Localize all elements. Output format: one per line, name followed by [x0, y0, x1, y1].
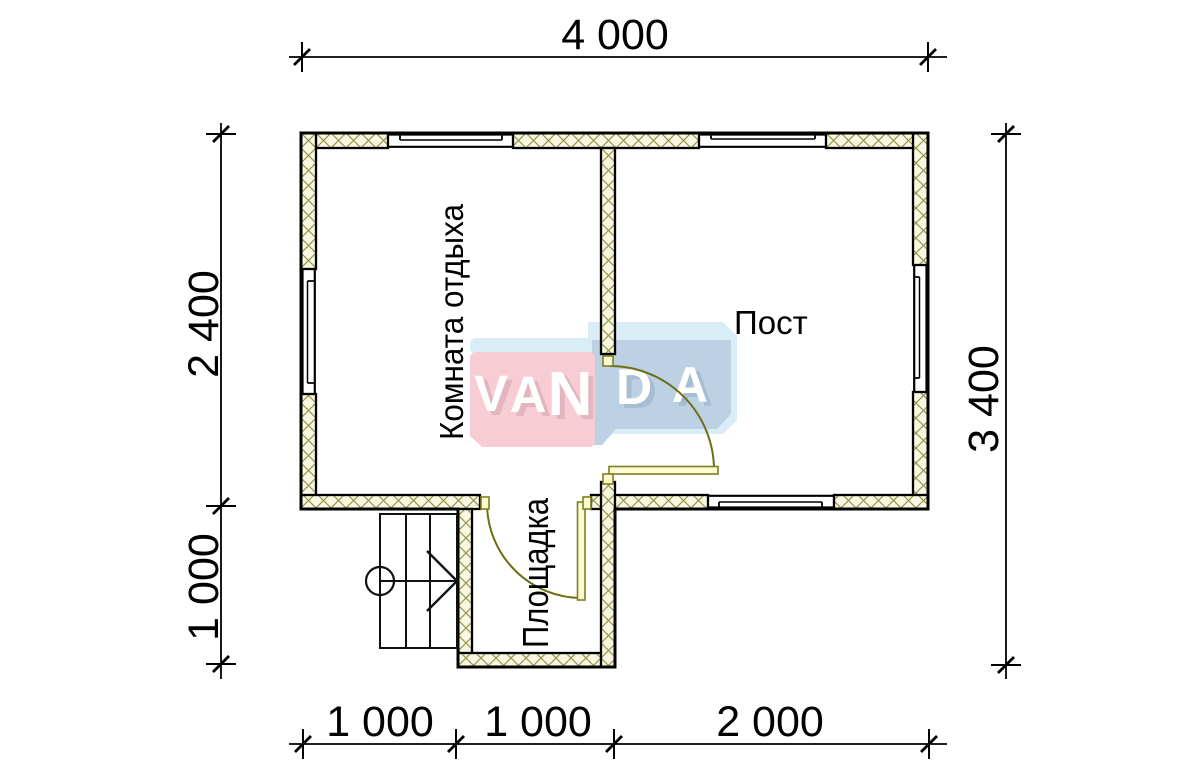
svg-text:1 000: 1 000: [326, 698, 434, 746]
svg-text:Пост: Пост: [734, 304, 808, 341]
svg-text:3 400: 3 400: [960, 345, 1008, 453]
svg-text:4 000: 4 000: [561, 11, 669, 59]
svg-text:1 000: 1 000: [484, 698, 592, 746]
svg-text:Комната отдыха: Комната отдыха: [433, 203, 470, 440]
svg-text:A: A: [510, 366, 547, 423]
svg-text:N: N: [548, 360, 593, 429]
svg-text:2 000: 2 000: [716, 698, 824, 746]
svg-text:2 400: 2 400: [180, 270, 228, 378]
svg-text:1 000: 1 000: [180, 533, 228, 641]
svg-text:V: V: [474, 365, 508, 422]
svg-text:Площадка: Площадка: [515, 497, 556, 648]
